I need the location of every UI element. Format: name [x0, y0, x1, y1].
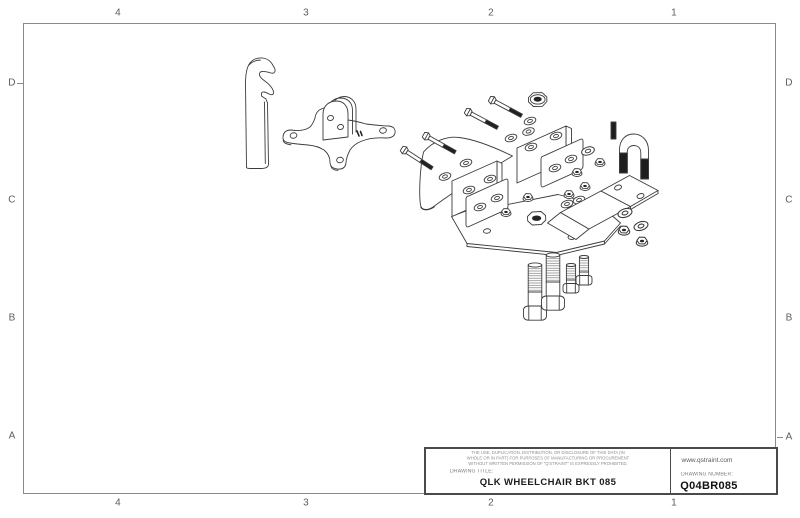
- exploded-view-drawing: [0, 0, 800, 518]
- fastener-stacks-right: [617, 207, 649, 246]
- disclaimer-text: THE USE, DUPLICATION, DISTRIBUTION, OR D…: [443, 451, 653, 467]
- title-block: THE USE, DUPLICATION, DISTRIBUTION, OR D…: [424, 447, 778, 495]
- part-threaded-stud: [611, 122, 616, 139]
- drawing-title: QLK WHEELCHAIR BKT 085: [426, 477, 670, 488]
- part-hex-nut-large: [529, 93, 547, 107]
- part-hex-nut-on-plate: [528, 212, 546, 226]
- drawing-title-label: DRAWING TITLE:: [450, 469, 493, 474]
- part-hook-strip: [246, 58, 276, 169]
- website-text: www.qstraint.com: [671, 457, 743, 464]
- drawing-sheet: 4 3 2 1 4 3 2 1 D C B A D C B A: [0, 0, 800, 518]
- drawing-number-label: DRAWING NUMBER:: [681, 472, 733, 477]
- fastener-vertical-bolts: [524, 253, 593, 320]
- title-block-left-cell: THE USE, DUPLICATION, DISTRIBUTION, OR D…: [426, 449, 671, 493]
- title-block-right-cell: www.qstraint.com DRAWING NUMBER: Q04BR08…: [671, 449, 776, 493]
- part-u-bolt: [620, 134, 649, 179]
- drawing-number: Q04BR085: [671, 480, 747, 492]
